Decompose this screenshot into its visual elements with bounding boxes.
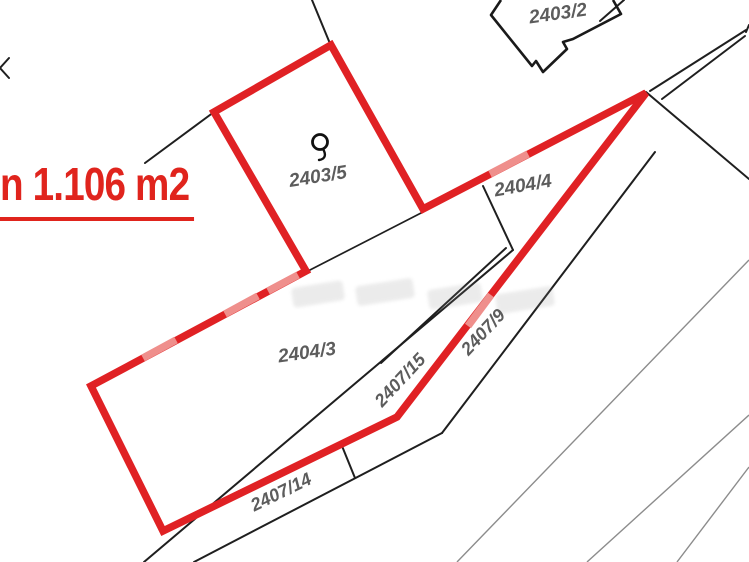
land-use-symbol-icon <box>313 135 328 161</box>
parcel-label-2403-5: 2403/5 <box>287 162 349 192</box>
watermark-band <box>291 278 555 315</box>
cadastral-map: 2403/2 2403/5 2404/4 2404/3 2407/15 2407… <box>0 0 749 562</box>
area-annotation: n 1.106 m2 <box>0 160 194 221</box>
parcel-label-2404-3: 2404/3 <box>276 338 338 367</box>
parcel-label-2404-4: 2404/4 <box>492 171 554 202</box>
cadastral-map-canvas: 2403/2 2403/5 2404/4 2404/3 2407/15 2407… <box>0 0 749 562</box>
parcel-boundary-lines <box>0 0 749 562</box>
parcel-label-2403-2: 2403/2 <box>527 0 589 29</box>
